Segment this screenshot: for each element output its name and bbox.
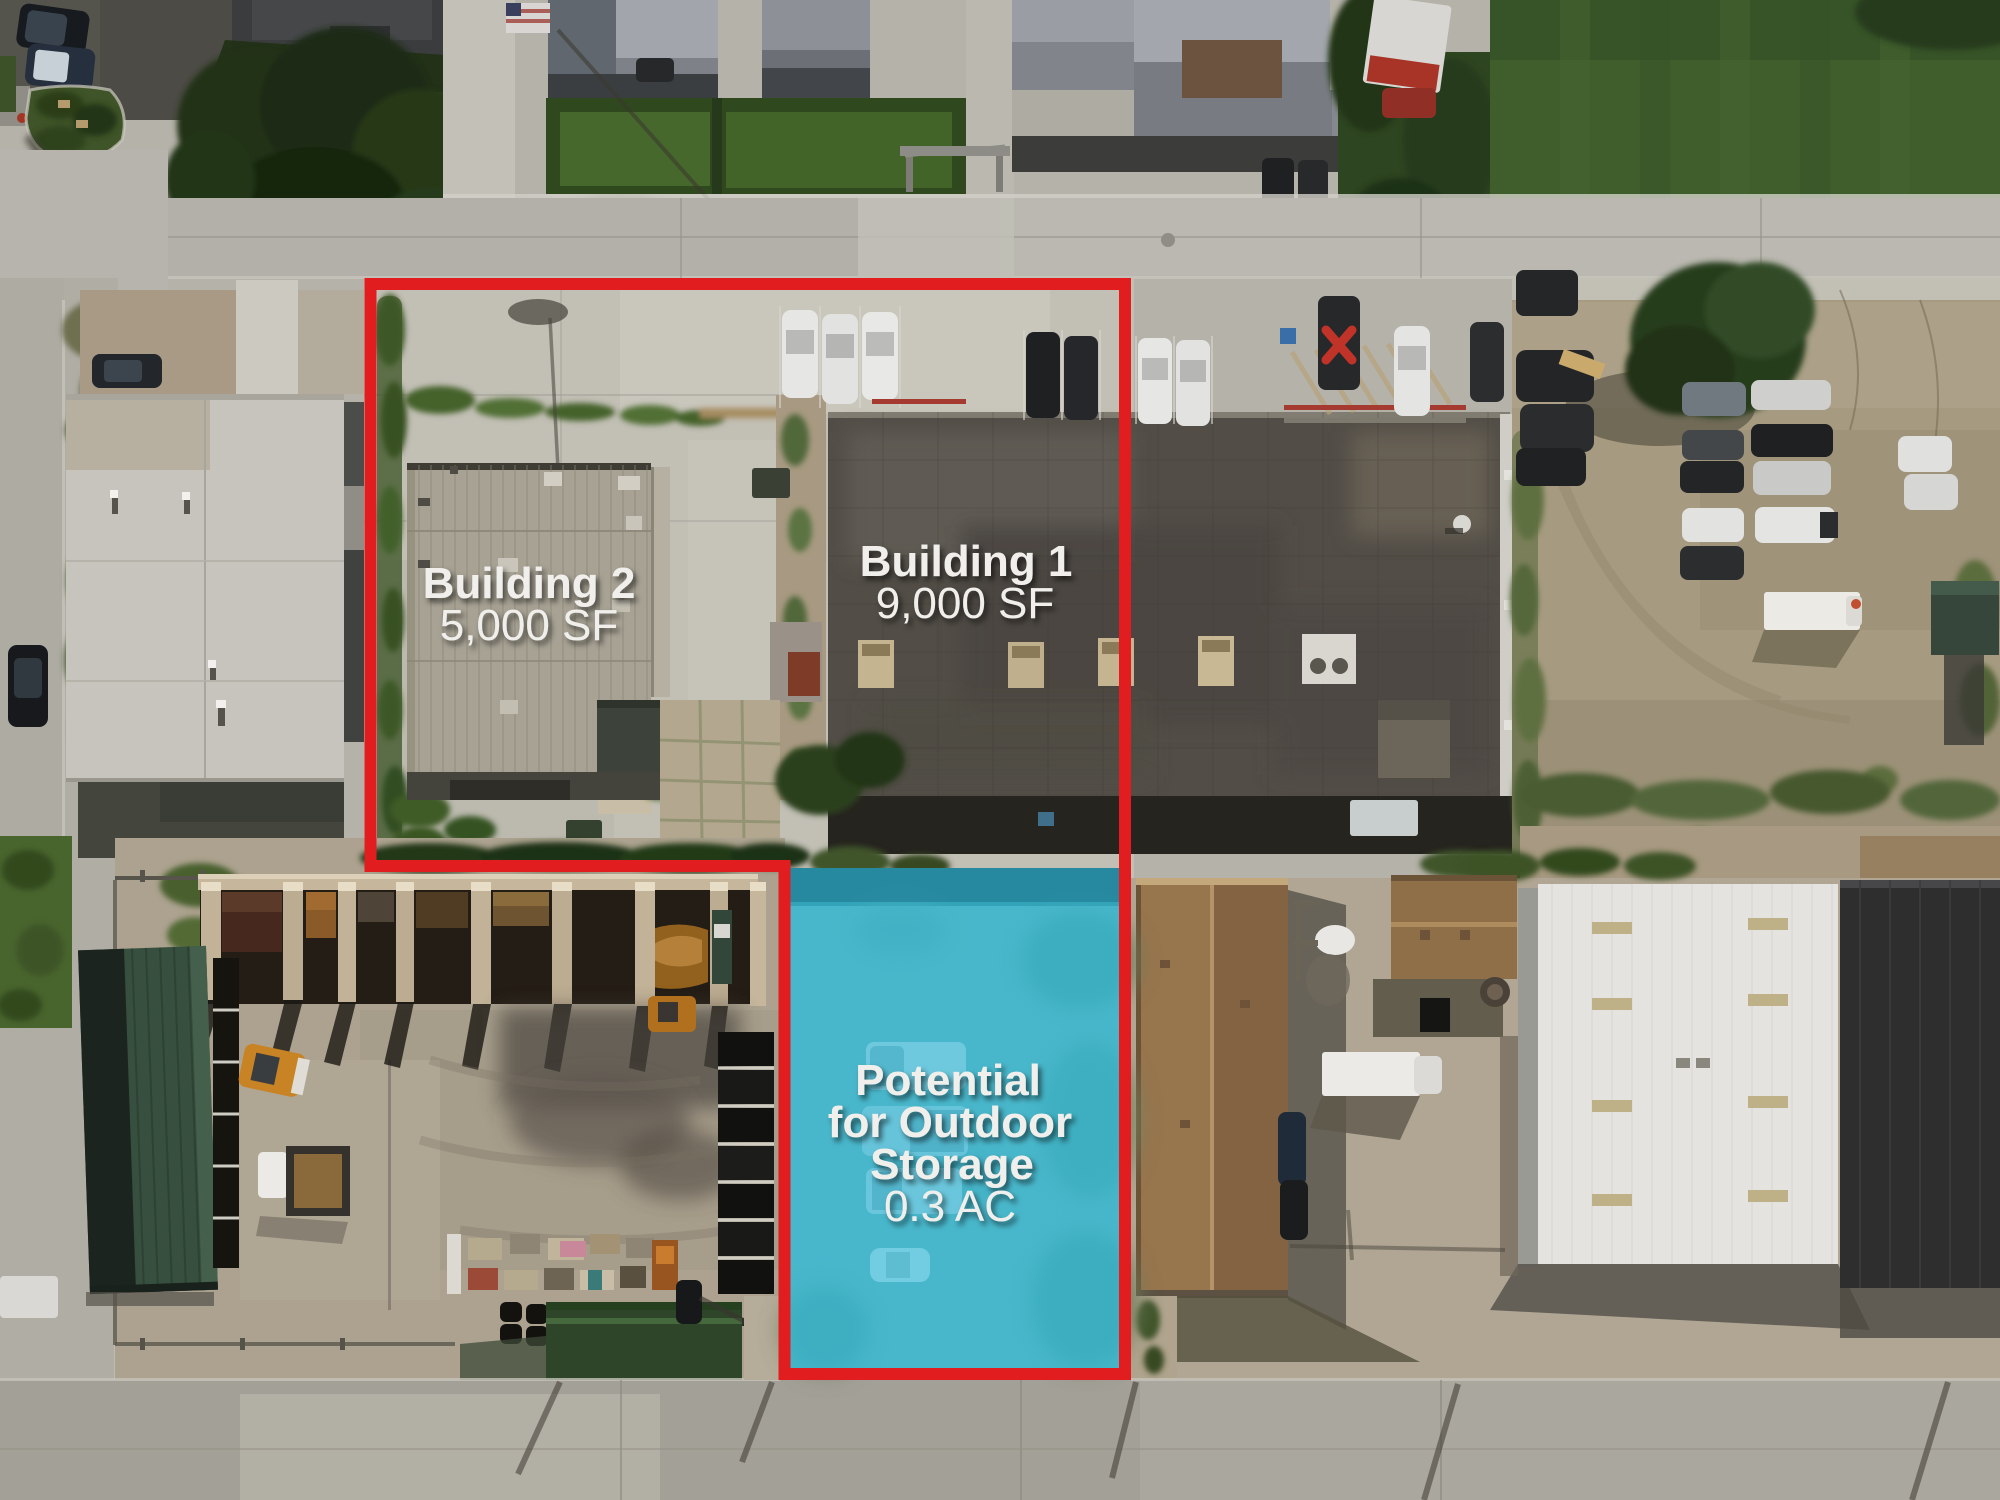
svg-text:5,000 SF: 5,000 SF (440, 601, 619, 650)
svg-text:9,000 SF: 9,000 SF (876, 579, 1055, 628)
svg-text:0.3 AC: 0.3 AC (884, 1182, 1016, 1231)
